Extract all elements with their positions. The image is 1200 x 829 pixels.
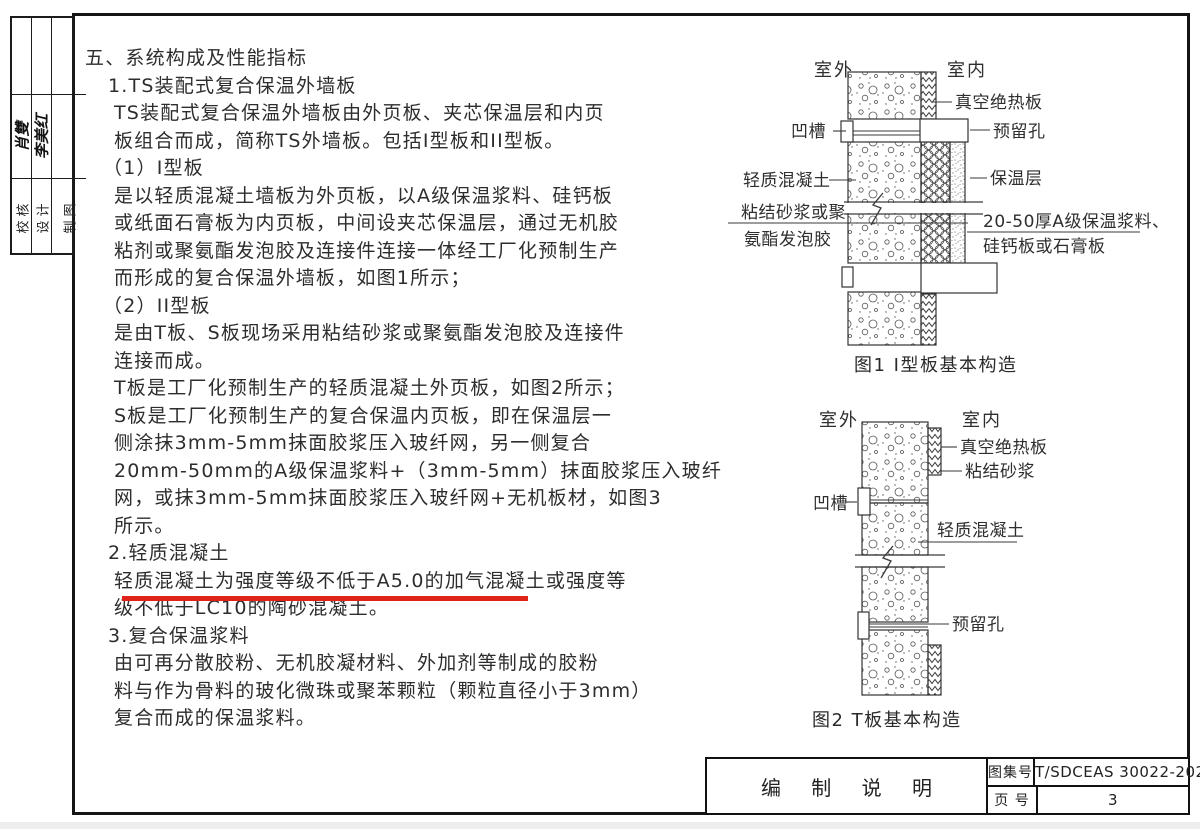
fig2-groove-label: 凹槽	[813, 494, 848, 514]
stamp-label-text: 设计	[32, 199, 51, 233]
paragraph-line: 复合而成的保温浆料。	[85, 705, 625, 733]
signature-drafter	[52, 95, 86, 179]
paragraph-line: 料与作为骨料的玻化微珠或聚苯颗粒（颗粒直径小于3mm）	[85, 678, 625, 706]
fig2-concrete-label: 轻质混凝土	[937, 521, 1025, 541]
paragraph-line: 板组合而成，简称TS外墙板。包括I型板和II型板。	[85, 128, 625, 156]
paragraph-line: 连接而成。	[85, 348, 625, 376]
fig1-inside-label: 室内	[947, 60, 987, 81]
atlas-number-label: 图集号	[988, 759, 1035, 785]
sheet-name: 编 制 说 明	[707, 759, 986, 813]
paragraph-line: 是以轻质混凝土墙板为外页板，以A级保温浆料、硅钙板	[85, 183, 625, 211]
signature-text: 肖雙	[11, 121, 32, 151]
paragraph-line: 20mm-50mm的A级保温浆料+（3mm-5mm）抹面胶浆压入玻纤	[85, 458, 625, 486]
stamp-cell-empty	[52, 18, 86, 95]
figure-2: 室外 室内 真空绝热板 粘结砂浆 凹槽 轻质混凝土 预留孔	[725, 405, 1190, 745]
sub-item-1: （1）I型板	[85, 155, 625, 183]
paragraph-line: 是由T板、S板现场采用粘结砂浆或聚氨酯发泡胶及连接件	[85, 320, 625, 348]
figure-1: 室外 室内 真空绝热板 预留孔 保温层 20-50	[725, 55, 1190, 395]
fig1-bond-label-1: 粘结砂浆或聚	[741, 203, 846, 223]
title-block: 编 制 说 明 图集号 T/SDCEAS 30022-2025 页 号 3	[705, 757, 1190, 815]
paragraph-line: 由可再分散胶粉、无机胶凝材料、外加剂等制成的胶粉	[85, 650, 625, 678]
figure-1-caption: 图1 I型板基本构造	[854, 351, 1017, 377]
paragraph-line: 所示。	[85, 513, 625, 541]
fig2-inside-label: 室内	[962, 410, 1002, 431]
page-number-value: 3	[1038, 787, 1188, 813]
paragraph-line: 而形成的复合保温外墙板，如图1所示；	[85, 265, 625, 293]
fig2-vip-label: 真空绝热板	[960, 438, 1048, 458]
stamp-cell-empty	[32, 18, 52, 95]
signature-text: 李美红	[31, 114, 52, 159]
stamp-label-text: 校核	[12, 199, 31, 233]
paragraph-line: 网，或抹3mm-5mm抹面胶浆压入玻纤网+无机板材，如图3	[85, 485, 625, 513]
fig1-bond-label-2: 氨酯发泡胶	[744, 230, 832, 250]
atlas-number-value: T/SDCEAS 30022-2025	[1035, 759, 1200, 785]
paragraph-line: 侧涂抹3mm-5mm抹面胶浆压入玻纤网，另一侧复合	[85, 430, 625, 458]
stamp-label-drafter: 制图	[52, 179, 86, 253]
body-text: 五、系统构成及性能指标 1.TS装配式复合保温外墙板 TS装配式复合保温外墙板由…	[85, 45, 625, 733]
fig1-concrete-label: 轻质混凝土	[743, 171, 831, 191]
paragraph-line: TS装配式复合保温外墙板由外页板、夹芯保温层和内页	[85, 100, 625, 128]
red-highlight-underline	[122, 596, 528, 601]
fig1-groove-label: 凹槽	[791, 122, 826, 142]
sub-item-2: （2）II型板	[85, 293, 625, 321]
stamp-cell-empty	[12, 18, 32, 95]
stamp-label-designer: 设计	[32, 179, 52, 253]
highlighted-line: 轻质混凝土为强度等级不低于A5.0的加气混凝土或强度等	[85, 568, 625, 596]
section-heading: 五、系统构成及性能指标	[85, 45, 625, 73]
paragraph-line: 粘剂或聚氨酯发泡胶及连接件连接一体经工厂化预制生产	[85, 238, 625, 266]
fig1-vip-label: 真空绝热板	[955, 93, 1043, 113]
paragraph-line: 或纸面石膏板为内页板，中间设夹芯保温层，通过无机胶	[85, 210, 625, 238]
item-2-heading: 2.轻质混凝土	[85, 540, 625, 568]
fig1-mortar-label-2: 硅钙板或石膏板	[983, 236, 1106, 257]
stamp-table: 肖雙 李美红 校核 设计 制图	[10, 16, 74, 255]
stamp-label-text: 制图	[60, 199, 79, 233]
signature-checker: 肖雙	[12, 95, 32, 179]
page-number-label: 页 号	[988, 787, 1038, 813]
fig2-wall-section	[855, 422, 945, 695]
paragraph-line: T板是工厂化预制生产的轻质混凝土外页板，如图2所示；	[85, 375, 625, 403]
fig1-mortar-label-1: 20-50厚A级保温浆料、	[983, 212, 1170, 232]
fig1-insulation-label: 保温层	[990, 169, 1043, 189]
title-block-right: 图集号 T/SDCEAS 30022-2025 页 号 3	[986, 759, 1188, 813]
fig2-outside-label: 室外	[819, 410, 859, 431]
stamp-label-checker: 校核	[12, 179, 32, 253]
item-3-heading: 3.复合保温浆料	[85, 623, 625, 651]
fig2-hole-label: 预留孔	[952, 615, 1005, 635]
paragraph-line: S板是工厂化预制生产的复合保温内页板，即在保温层一	[85, 403, 625, 431]
fig1-hole-label: 预留孔	[993, 122, 1046, 142]
figure-1-drawing: 室外 室内 真空绝热板 预留孔 保温层 20-50	[725, 55, 1190, 395]
signature-designer: 李美红	[32, 95, 52, 179]
figure-2-drawing: 室外 室内 真空绝热板 粘结砂浆 凹槽 轻质混凝土 预留孔	[725, 405, 1190, 745]
scan-edge-artifact	[0, 822, 1200, 829]
figure-2-caption: 图2 T板基本构造	[812, 706, 962, 732]
item-1-heading: 1.TS装配式复合保温外墙板	[85, 73, 625, 101]
fig2-mortar-label: 粘结砂浆	[965, 462, 1035, 482]
